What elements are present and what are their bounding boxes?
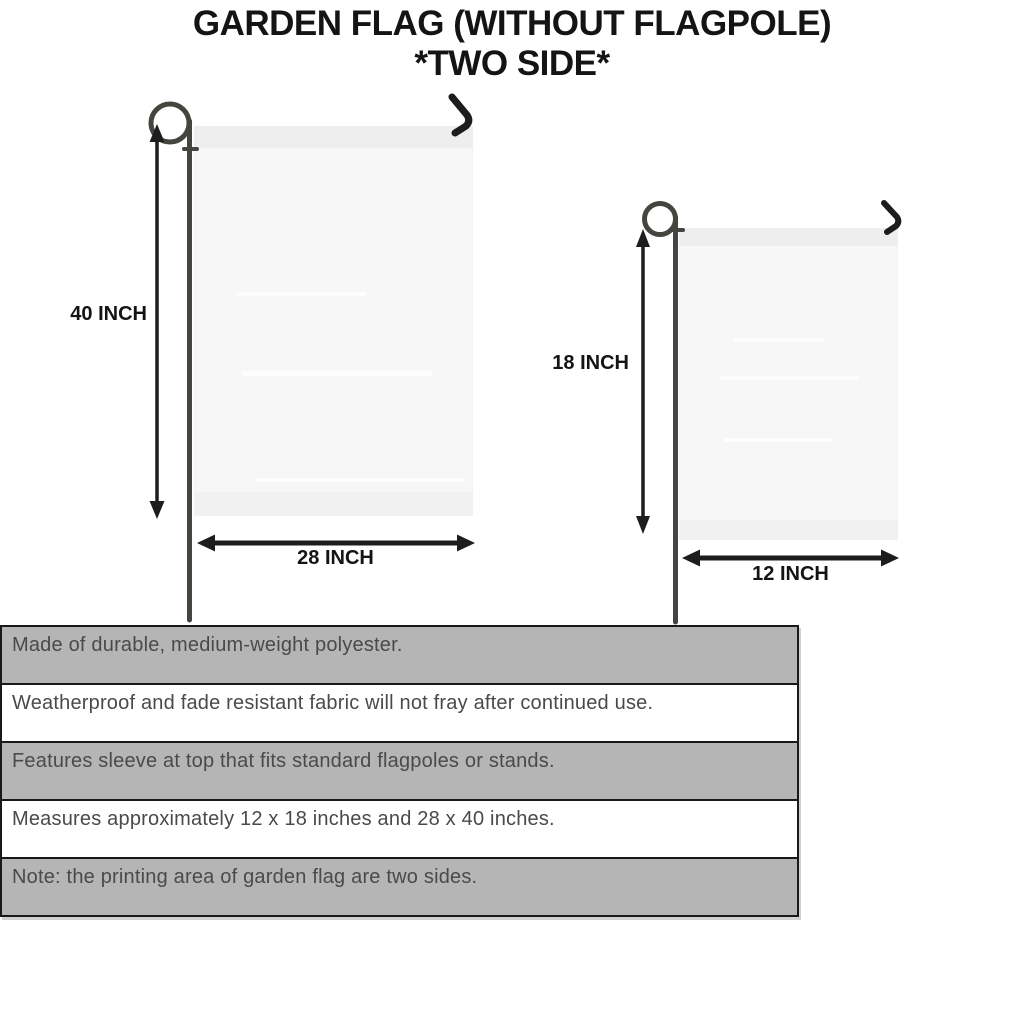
small-flag bbox=[679, 228, 898, 540]
height-arrow-small bbox=[636, 229, 650, 534]
small-flag-width-label: 12 INCH bbox=[682, 562, 899, 586]
large-flagpole-icon bbox=[151, 104, 197, 620]
title-line-2: *TWO SIDE* bbox=[0, 44, 1024, 84]
large-flag-hem bbox=[194, 492, 473, 516]
feature-row: Note: the printing area of garden flag a… bbox=[2, 857, 797, 915]
small-flag-hem bbox=[679, 520, 898, 540]
height-arrow-large bbox=[150, 124, 165, 519]
feature-row: Made of durable, medium-weight polyester… bbox=[2, 627, 797, 683]
title-line-1: GARDEN FLAG (WITHOUT FLAGPOLE) bbox=[0, 4, 1024, 44]
feature-row: Features sleeve at top that fits standar… bbox=[2, 741, 797, 799]
fabric-highlight bbox=[724, 438, 834, 442]
fabric-highlight bbox=[719, 376, 859, 380]
feature-row: Weatherproof and fade resistant fabric w… bbox=[2, 683, 797, 741]
fabric-highlight bbox=[734, 338, 824, 342]
feature-row: Measures approximately 12 x 18 inches an… bbox=[2, 799, 797, 857]
small-flag-sleeve bbox=[679, 228, 898, 246]
fabric-highlight bbox=[242, 371, 432, 376]
small-flagpole-icon bbox=[645, 204, 684, 623]
large-flag bbox=[194, 126, 473, 516]
large-flag-height-label: 40 INCH bbox=[55, 302, 147, 326]
garden-flag-infographic: GARDEN FLAG (WITHOUT FLAGPOLE) *TWO SIDE… bbox=[0, 0, 1024, 1024]
feature-table: Made of durable, medium-weight polyester… bbox=[0, 625, 799, 917]
fabric-highlight bbox=[236, 292, 366, 296]
large-flag-width-label: 28 INCH bbox=[197, 546, 474, 570]
large-flag-sleeve bbox=[194, 126, 473, 148]
page-title: GARDEN FLAG (WITHOUT FLAGPOLE) *TWO SIDE… bbox=[0, 4, 1024, 84]
fabric-highlight bbox=[254, 478, 464, 482]
small-flag-height-label: 18 INCH bbox=[540, 351, 629, 375]
